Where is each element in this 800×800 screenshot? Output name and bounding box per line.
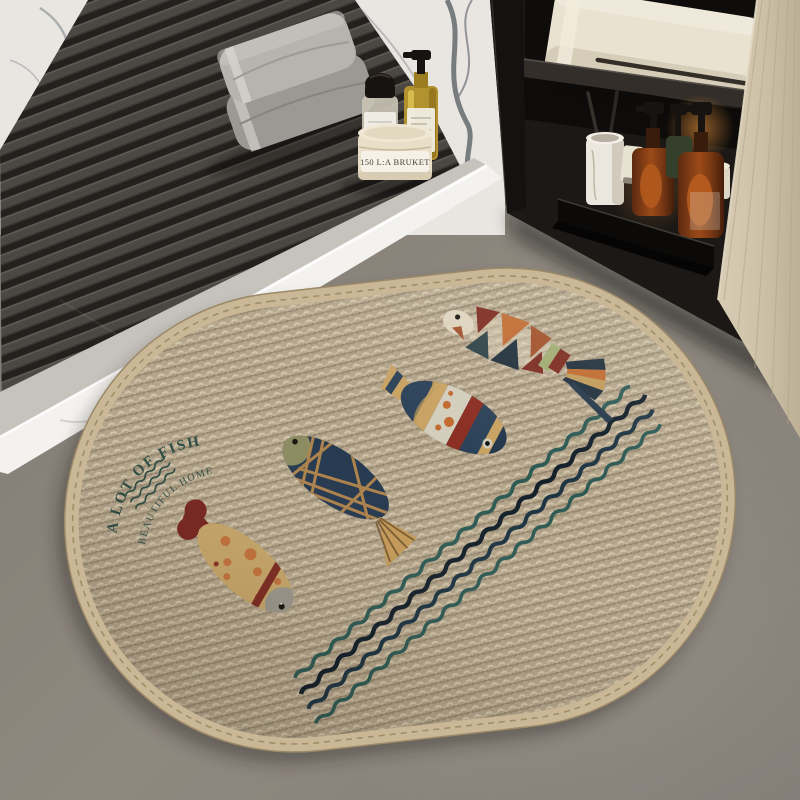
scene-canvas: 150 L:A BRUKET — [0, 0, 800, 800]
pump-spout — [403, 52, 415, 58]
bottle-liquid-glow — [640, 164, 662, 208]
la-bruket-jar: 150 L:A BRUKET — [358, 124, 432, 180]
clear-bottle-cap-dome — [365, 73, 395, 95]
bathroom-scene: 150 L:A BRUKET — [0, 0, 800, 800]
pump-spout — [683, 105, 695, 112]
jar-label-text: 150 L:A BRUKET — [360, 157, 430, 167]
bottle-neck — [414, 72, 428, 88]
cup-opening — [591, 134, 619, 142]
bottle-label — [690, 192, 720, 230]
jar-lid-inner — [364, 127, 426, 140]
pump-spout — [636, 105, 648, 112]
